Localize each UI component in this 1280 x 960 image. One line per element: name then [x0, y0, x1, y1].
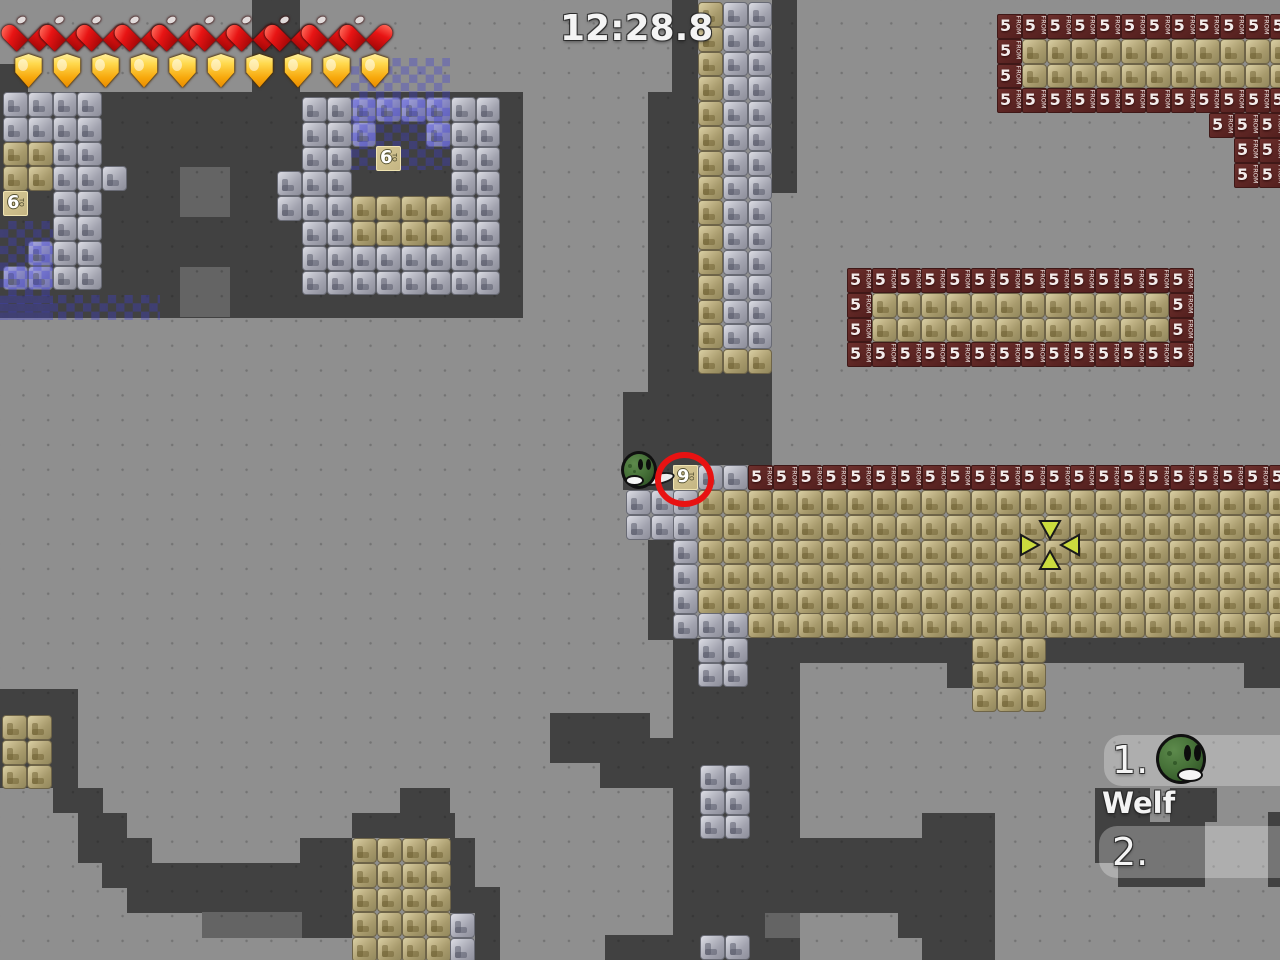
tile-dirt[interactable] — [971, 540, 996, 565]
tile-stone[interactable] — [725, 765, 750, 790]
tile-block-5[interactable]: 5FROM — [1269, 465, 1280, 490]
tile-block-5[interactable]: 5FROM — [847, 293, 872, 318]
tile-dirt[interactable] — [822, 589, 847, 614]
tile-stone[interactable] — [723, 200, 748, 225]
tile-block-5[interactable]: 5FROM — [1047, 14, 1072, 39]
tile-stone[interactable] — [77, 142, 102, 167]
tile-dirt[interactable] — [1022, 638, 1047, 663]
tile-dirt[interactable] — [3, 142, 28, 167]
tile-block-5[interactable]: 5FROM — [1022, 14, 1047, 39]
tile-stone[interactable] — [401, 271, 426, 296]
tile-dirt[interactable] — [401, 196, 426, 221]
tile-stone[interactable] — [626, 490, 651, 515]
tile-dirt[interactable] — [1144, 490, 1169, 515]
tile-stone[interactable] — [450, 913, 475, 938]
tile-stone[interactable] — [723, 225, 748, 250]
tile-dirt[interactable] — [1195, 64, 1220, 89]
tile-block-5[interactable]: 5FROM — [1220, 88, 1245, 113]
tile-dirt[interactable] — [426, 888, 451, 913]
tile-stone[interactable] — [53, 266, 78, 291]
tile-block-5[interactable]: 5FROM — [1259, 138, 1280, 163]
tile-dirt[interactable] — [1021, 318, 1046, 343]
tile-dirt[interactable] — [1120, 515, 1145, 540]
tile-dirt[interactable] — [921, 490, 946, 515]
tile-dirt[interactable] — [1171, 64, 1196, 89]
tile-dirt[interactable] — [996, 589, 1021, 614]
tile-dirt[interactable] — [971, 318, 996, 343]
tile-dirt[interactable] — [1095, 613, 1120, 638]
tile-block-5[interactable]: 5FROM — [1259, 113, 1280, 138]
tile-dirt[interactable] — [1070, 293, 1095, 318]
tile-dirt[interactable] — [872, 293, 897, 318]
tile-dirt[interactable] — [1169, 490, 1194, 515]
tile-block-5[interactable]: 5FROM — [1171, 88, 1196, 113]
tile-block-5[interactable]: 5FROM — [897, 268, 922, 293]
tile-stone[interactable] — [748, 2, 773, 27]
tile-dirt[interactable] — [1070, 490, 1095, 515]
tile-stone[interactable] — [673, 564, 698, 589]
tile-block-5[interactable]: 5FROM — [1120, 268, 1145, 293]
tile-dirt[interactable] — [426, 221, 451, 246]
tile-stone[interactable] — [748, 275, 773, 300]
tile-dirt[interactable] — [698, 275, 723, 300]
tile-stone[interactable] — [673, 589, 698, 614]
tile-block-5[interactable]: 5FROM — [1121, 88, 1146, 113]
tile-dirt[interactable] — [872, 589, 897, 614]
tile-block-5[interactable]: 5FROM — [1194, 465, 1219, 490]
tile-dirt[interactable] — [1244, 515, 1269, 540]
tile-stone[interactable] — [700, 790, 725, 815]
tile-dirt[interactable] — [921, 293, 946, 318]
tile-dirt[interactable] — [1046, 613, 1071, 638]
tile-dirt[interactable] — [698, 52, 723, 77]
tile-block-5[interactable]: 5FROM — [921, 268, 946, 293]
tile-dirt[interactable] — [1194, 490, 1219, 515]
tile-block-5[interactable]: 5FROM — [921, 342, 946, 367]
tile-stone[interactable] — [723, 613, 748, 638]
tile-stone[interactable] — [77, 117, 102, 142]
tile-dirt[interactable] — [897, 613, 922, 638]
tile-block-5[interactable]: 5FROM — [773, 465, 798, 490]
tile-dirt[interactable] — [1095, 540, 1120, 565]
tile-dirt[interactable] — [946, 490, 971, 515]
tile-block-5[interactable]: 5FROM — [922, 465, 947, 490]
tile-dirt[interactable] — [773, 613, 798, 638]
tile-dirt[interactable] — [946, 515, 971, 540]
tile-stone[interactable] — [723, 27, 748, 52]
tile-dirt[interactable] — [1169, 515, 1194, 540]
tile-dirt[interactable] — [1169, 564, 1194, 589]
tile-dirt[interactable] — [1270, 64, 1280, 89]
tile-dirt[interactable] — [1070, 318, 1095, 343]
tile-dirt[interactable] — [723, 349, 748, 374]
tile-dirt[interactable] — [772, 564, 797, 589]
tile-dirt[interactable] — [996, 490, 1021, 515]
tile-dirt[interactable] — [872, 318, 897, 343]
tile-dirt[interactable] — [798, 613, 823, 638]
tile-dirt[interactable] — [1169, 540, 1194, 565]
tile-dirt[interactable] — [1120, 490, 1145, 515]
tile-stone[interactable] — [302, 196, 327, 221]
tile-dirt[interactable] — [872, 490, 897, 515]
tile-dirt[interactable] — [1021, 613, 1046, 638]
tile-dirt[interactable] — [872, 515, 897, 540]
tile-dirt[interactable] — [1146, 64, 1171, 89]
tile-stone[interactable] — [53, 191, 78, 216]
tile-dirt[interactable] — [971, 515, 996, 540]
tile-dirt[interactable] — [1244, 589, 1269, 614]
tile-block-5[interactable]: 5FROM — [1096, 14, 1121, 39]
tile-dirt[interactable] — [1219, 515, 1244, 540]
tile-dirt[interactable] — [1268, 490, 1280, 515]
tile-block-5[interactable]: 5FROM — [1146, 88, 1171, 113]
tile-dirt[interactable] — [352, 912, 377, 937]
tile-dirt[interactable] — [27, 765, 52, 790]
tile-stone[interactable] — [376, 246, 401, 271]
tile-block-5[interactable]: 5FROM — [1095, 342, 1120, 367]
tile-dirt[interactable] — [352, 221, 377, 246]
tile-dirt[interactable] — [28, 166, 53, 191]
tile-dirt[interactable] — [1045, 490, 1070, 515]
tile-dirt[interactable] — [847, 515, 872, 540]
tile-dirt[interactable] — [897, 293, 922, 318]
tile-dirt[interactable] — [847, 490, 872, 515]
tile-dirt[interactable] — [1220, 39, 1245, 64]
tile-block-5[interactable]: 5FROM — [1169, 318, 1194, 343]
tile-dirt[interactable] — [28, 142, 53, 167]
tile-stone[interactable] — [302, 171, 327, 196]
tile-block-5[interactable]: 5FROM — [1045, 268, 1070, 293]
tile-dirt[interactable] — [698, 300, 723, 325]
tile-block-5[interactable]: 5FROM — [946, 342, 971, 367]
tile-dirt[interactable] — [847, 613, 872, 638]
tile-stone[interactable] — [748, 300, 773, 325]
tile-stone[interactable] — [302, 246, 327, 271]
tile-dirt[interactable] — [352, 937, 377, 960]
tile-block-5[interactable]: 5FROM — [997, 64, 1022, 89]
tile-dirt[interactable] — [402, 838, 427, 863]
tile-stone[interactable] — [3, 117, 28, 142]
tile-dirt[interactable] — [922, 613, 947, 638]
tile-dirt[interactable] — [971, 613, 996, 638]
tile-dirt[interactable] — [1268, 564, 1280, 589]
tile-block-5[interactable]: 5FROM — [1145, 268, 1170, 293]
tile-dirt[interactable] — [971, 293, 996, 318]
tile-stone[interactable] — [3, 92, 28, 117]
tile-dig-counter[interactable]: 6TO — [376, 146, 401, 171]
tile-block-5[interactable]: 5FROM — [1234, 163, 1259, 188]
tile-dirt[interactable] — [772, 490, 797, 515]
tile-block-5[interactable]: 5FROM — [1171, 14, 1196, 39]
tile-dirt[interactable] — [1047, 39, 1072, 64]
tile-dirt[interactable] — [972, 688, 997, 713]
tile-block-5[interactable]: 5FROM — [1095, 268, 1120, 293]
tile-dirt[interactable] — [1022, 64, 1047, 89]
tile-stone[interactable] — [626, 515, 651, 540]
tile-stone[interactable] — [723, 126, 748, 151]
tile-dirt[interactable] — [1244, 613, 1269, 638]
tile-dirt[interactable] — [1244, 490, 1269, 515]
tile-dirt[interactable] — [426, 838, 451, 863]
tile-dirt[interactable] — [748, 349, 773, 374]
tile-block-5[interactable]: 5FROM — [1219, 465, 1244, 490]
tile-dirt[interactable] — [1268, 589, 1280, 614]
tile-stone[interactable] — [673, 515, 698, 540]
tile-dirt[interactable] — [698, 225, 723, 250]
tile-stone[interactable] — [102, 166, 127, 191]
tile-block-5[interactable]: 5FROM — [872, 342, 897, 367]
tile-dirt[interactable] — [1144, 515, 1169, 540]
tile-dirt[interactable] — [921, 515, 946, 540]
tile-block-5[interactable]: 5FROM — [897, 465, 922, 490]
tile-dirt[interactable] — [772, 540, 797, 565]
tile-block-5[interactable]: 5FROM — [1270, 88, 1280, 113]
tile-stone[interactable] — [450, 938, 475, 960]
tile-block-5[interactable]: 5FROM — [1095, 465, 1120, 490]
tile-stone[interactable] — [723, 300, 748, 325]
tile-stone[interactable] — [302, 147, 327, 172]
tile-dirt[interactable] — [997, 688, 1022, 713]
tile-dirt[interactable] — [921, 564, 946, 589]
tile-dirt[interactable] — [748, 515, 773, 540]
tile-block-5[interactable]: 5FROM — [1070, 342, 1095, 367]
tile-dirt[interactable] — [1145, 613, 1170, 638]
tile-block-5[interactable]: 5FROM — [1145, 342, 1170, 367]
tile-stone[interactable] — [352, 271, 377, 296]
tile-stone-marked[interactable] — [401, 97, 426, 122]
tile-dirt[interactable] — [847, 540, 872, 565]
tile-stone[interactable] — [723, 663, 748, 688]
tile-stone[interactable] — [426, 246, 451, 271]
tile-dirt[interactable] — [698, 126, 723, 151]
tile-stone[interactable] — [748, 151, 773, 176]
tile-block-5[interactable]: 5FROM — [1234, 138, 1259, 163]
tile-block-5[interactable]: 5FROM — [1071, 14, 1096, 39]
tile-dirt[interactable] — [748, 540, 773, 565]
tile-dirt[interactable] — [946, 540, 971, 565]
tile-block-5[interactable]: 5FROM — [1146, 14, 1171, 39]
tile-block-5[interactable]: 5FROM — [1169, 293, 1194, 318]
tile-block-5[interactable]: 5FROM — [1021, 342, 1046, 367]
tile-dirt[interactable] — [401, 221, 426, 246]
tile-dirt[interactable] — [377, 912, 402, 937]
tile-dirt[interactable] — [698, 101, 723, 126]
tile-block-5[interactable]: 5FROM — [971, 342, 996, 367]
tile-dirt[interactable] — [402, 912, 427, 937]
tile-dirt[interactable] — [1195, 39, 1220, 64]
tile-stone[interactable] — [723, 76, 748, 101]
tile-dirt[interactable] — [1194, 613, 1219, 638]
tile-stone[interactable] — [476, 147, 501, 172]
tile-dirt[interactable] — [723, 589, 748, 614]
tile-dirt[interactable] — [1120, 318, 1145, 343]
tile-dirt[interactable] — [698, 200, 723, 225]
tile-dirt[interactable] — [402, 888, 427, 913]
tile-dirt[interactable] — [797, 540, 822, 565]
tile-stone[interactable] — [476, 271, 501, 296]
tile-dirt[interactable] — [1045, 318, 1070, 343]
tile-stone-marked[interactable] — [376, 97, 401, 122]
tile-dirt[interactable] — [377, 838, 402, 863]
tile-dig-counter[interactable]: 6TO — [3, 191, 28, 216]
tile-block-5[interactable]: 5FROM — [1096, 88, 1121, 113]
tile-dirt[interactable] — [797, 589, 822, 614]
tile-dirt[interactable] — [1045, 293, 1070, 318]
tile-stone[interactable] — [748, 250, 773, 275]
tile-dirt[interactable] — [1144, 589, 1169, 614]
tile-block-5[interactable]: 5FROM — [1120, 342, 1145, 367]
tile-stone[interactable] — [327, 196, 352, 221]
tile-block-5[interactable]: 5FROM — [872, 268, 897, 293]
tile-stone[interactable] — [53, 142, 78, 167]
tile-dirt[interactable] — [1096, 64, 1121, 89]
tile-dirt[interactable] — [698, 564, 723, 589]
tile-stone[interactable] — [77, 241, 102, 266]
tile-stone[interactable] — [53, 241, 78, 266]
tile-dirt[interactable] — [1095, 515, 1120, 540]
tile-dirt[interactable] — [772, 589, 797, 614]
tile-block-5[interactable]: 5FROM — [997, 88, 1022, 113]
tile-dirt[interactable] — [996, 613, 1021, 638]
tile-stone[interactable] — [53, 117, 78, 142]
tile-stone[interactable] — [302, 97, 327, 122]
tile-block-5[interactable]: 5FROM — [897, 342, 922, 367]
tile-dirt[interactable] — [723, 564, 748, 589]
tile-dirt[interactable] — [921, 540, 946, 565]
tile-dirt[interactable] — [1194, 515, 1219, 540]
tile-dirt[interactable] — [896, 515, 921, 540]
tile-dirt[interactable] — [1121, 39, 1146, 64]
tile-dirt[interactable] — [1120, 613, 1145, 638]
tile-dirt[interactable] — [971, 589, 996, 614]
tile-block-5[interactable]: 5FROM — [1169, 342, 1194, 367]
tile-dirt[interactable] — [1121, 64, 1146, 89]
tile-block-5[interactable]: 5FROM — [1169, 268, 1194, 293]
tile-stone[interactable] — [302, 221, 327, 246]
tile-stone[interactable] — [723, 101, 748, 126]
tile-dirt[interactable] — [426, 912, 451, 937]
tile-dirt[interactable] — [376, 196, 401, 221]
tile-block-5[interactable]: 5FROM — [1022, 88, 1047, 113]
tile-block-5[interactable]: 5FROM — [971, 465, 996, 490]
tile-stone-marked[interactable] — [426, 97, 451, 122]
tile-block-5[interactable]: 5FROM — [996, 342, 1021, 367]
tile-stone[interactable] — [77, 216, 102, 241]
tile-dirt[interactable] — [2, 715, 27, 740]
tile-dirt[interactable] — [426, 863, 451, 888]
tile-dirt[interactable] — [698, 515, 723, 540]
tile-stone[interactable] — [451, 171, 476, 196]
tile-dirt[interactable] — [1219, 613, 1244, 638]
tile-stone[interactable] — [748, 101, 773, 126]
tile-stone[interactable] — [277, 171, 302, 196]
tile-dirt[interactable] — [1120, 564, 1145, 589]
tile-dirt[interactable] — [1269, 613, 1280, 638]
tile-stone[interactable] — [376, 271, 401, 296]
tile-dirt[interactable] — [946, 318, 971, 343]
tile-dirt[interactable] — [1095, 293, 1120, 318]
tile-stone[interactable] — [700, 765, 725, 790]
tile-dirt[interactable] — [1245, 64, 1270, 89]
tile-stone[interactable] — [723, 52, 748, 77]
tile-dirt[interactable] — [1070, 589, 1095, 614]
tile-dirt[interactable] — [748, 564, 773, 589]
tile-dirt[interactable] — [946, 613, 971, 638]
tile-block-5[interactable]: 5FROM — [1245, 14, 1270, 39]
tile-dirt[interactable] — [426, 937, 451, 960]
tile-block-5[interactable]: 5FROM — [847, 268, 872, 293]
tile-dirt[interactable] — [723, 490, 748, 515]
tile-stone[interactable] — [476, 171, 501, 196]
tile-stone[interactable] — [401, 246, 426, 271]
tile-dirt[interactable] — [698, 324, 723, 349]
tile-stone[interactable] — [327, 221, 352, 246]
tile-dirt[interactable] — [1095, 589, 1120, 614]
tile-dirt[interactable] — [1120, 589, 1145, 614]
tile-dirt[interactable] — [1022, 39, 1047, 64]
tile-stone[interactable] — [748, 176, 773, 201]
tile-stone[interactable] — [327, 171, 352, 196]
tile-dirt[interactable] — [872, 540, 897, 565]
tile-dirt[interactable] — [1045, 589, 1070, 614]
tile-dirt[interactable] — [1194, 589, 1219, 614]
tile-dirt[interactable] — [946, 293, 971, 318]
tile-block-5[interactable]: 5FROM — [996, 465, 1021, 490]
tile-dirt[interactable] — [996, 318, 1021, 343]
tile-dirt[interactable] — [1270, 39, 1280, 64]
tile-dirt[interactable] — [997, 663, 1022, 688]
tile-dirt[interactable] — [698, 151, 723, 176]
tile-dirt[interactable] — [698, 76, 723, 101]
tile-stone[interactable] — [476, 196, 501, 221]
tile-dirt[interactable] — [1120, 293, 1145, 318]
tile-dirt[interactable] — [1219, 540, 1244, 565]
tile-block-5[interactable]: 5FROM — [1259, 163, 1280, 188]
tile-block-5[interactable]: 5FROM — [1170, 465, 1195, 490]
tile-stone[interactable] — [451, 147, 476, 172]
tile-stone[interactable] — [451, 271, 476, 296]
tile-stone[interactable] — [725, 935, 750, 960]
tile-stone[interactable] — [723, 250, 748, 275]
tile-stone[interactable] — [451, 122, 476, 147]
tile-stone[interactable] — [53, 166, 78, 191]
tile-dirt[interactable] — [723, 540, 748, 565]
tile-stone[interactable] — [700, 815, 725, 840]
tile-stone[interactable] — [77, 92, 102, 117]
tile-dirt[interactable] — [797, 515, 822, 540]
tile-block-5[interactable]: 5FROM — [798, 465, 823, 490]
tile-stone[interactable] — [77, 266, 102, 291]
tile-dirt[interactable] — [376, 221, 401, 246]
tile-block-5[interactable]: 5FROM — [1070, 268, 1095, 293]
tile-stone[interactable] — [748, 225, 773, 250]
tile-stone[interactable] — [673, 540, 698, 565]
tile-block-5[interactable]: 5FROM — [847, 318, 872, 343]
tile-stone[interactable] — [476, 122, 501, 147]
tile-stone[interactable] — [748, 200, 773, 225]
tile-dirt[interactable] — [1071, 64, 1096, 89]
tile-dirt[interactable] — [1021, 293, 1046, 318]
tile-dirt[interactable] — [748, 490, 773, 515]
tile-stone[interactable] — [327, 147, 352, 172]
tile-stone[interactable] — [748, 52, 773, 77]
tile-dirt[interactable] — [1170, 613, 1195, 638]
tile-dirt[interactable] — [822, 515, 847, 540]
tile-dirt[interactable] — [1194, 564, 1219, 589]
tile-dirt[interactable] — [1146, 39, 1171, 64]
tile-block-5[interactable]: 5FROM — [997, 14, 1022, 39]
tile-stone[interactable] — [725, 815, 750, 840]
